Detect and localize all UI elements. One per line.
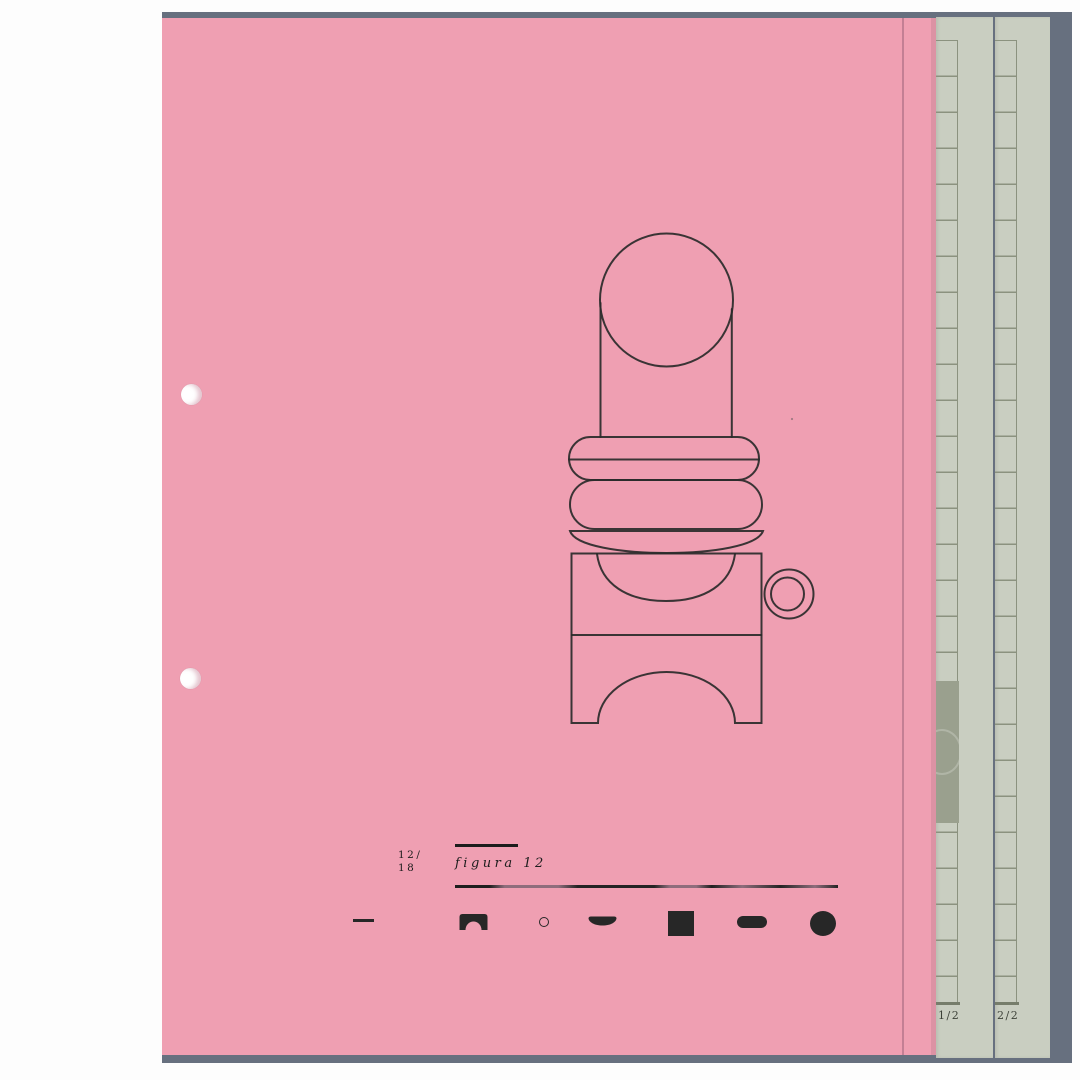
sheet-edge-1: 1/2 bbox=[936, 17, 993, 1058]
sheet-1-grid-column bbox=[936, 40, 958, 1002]
handle-inner-circle bbox=[771, 578, 804, 611]
sheet-1-page-label: 1/2 bbox=[938, 1009, 960, 1022]
sheet-1-dark-print-showthrough bbox=[936, 681, 959, 823]
cube-with-arch-base bbox=[572, 554, 762, 724]
legend-dash-icon bbox=[353, 919, 374, 922]
sheet-2-page-label: 2/2 bbox=[997, 1009, 1019, 1022]
caption-rule-top bbox=[455, 844, 518, 847]
sheet-2-grid-column bbox=[995, 40, 1017, 1002]
sheet-index-denominator: 18 bbox=[398, 862, 416, 874]
legend-dish-icon bbox=[587, 916, 618, 926]
cylinder-top-circle bbox=[600, 234, 733, 367]
legend-ring-icon bbox=[539, 917, 549, 927]
cube-top-dome bbox=[597, 554, 735, 601]
saucer bbox=[570, 531, 763, 553]
scanned-page-canvas: 12/18 figura 12 1/2 2/2 bbox=[0, 0, 1080, 1080]
sheet-1-showthrough-ring bbox=[936, 729, 959, 775]
paper-speck bbox=[791, 418, 793, 420]
caption-rule-bottom bbox=[455, 885, 838, 888]
legend-dot-icon bbox=[810, 911, 836, 936]
sheet-2-grid-footer-bar bbox=[995, 1002, 1019, 1005]
disc-band-lower bbox=[570, 480, 762, 529]
sheet-index: 12/18 bbox=[398, 849, 422, 875]
sheet-edge-2: 2/2 bbox=[995, 17, 1050, 1058]
sheet-index-numerator: 12/ bbox=[398, 849, 422, 861]
figure-title: figura 12 bbox=[455, 856, 547, 871]
sheet-1-grid-footer-bar bbox=[936, 1002, 960, 1005]
legend-arch-icon bbox=[458, 913, 489, 930]
legend-pill-icon bbox=[737, 916, 767, 928]
legend-square-icon bbox=[668, 911, 694, 936]
